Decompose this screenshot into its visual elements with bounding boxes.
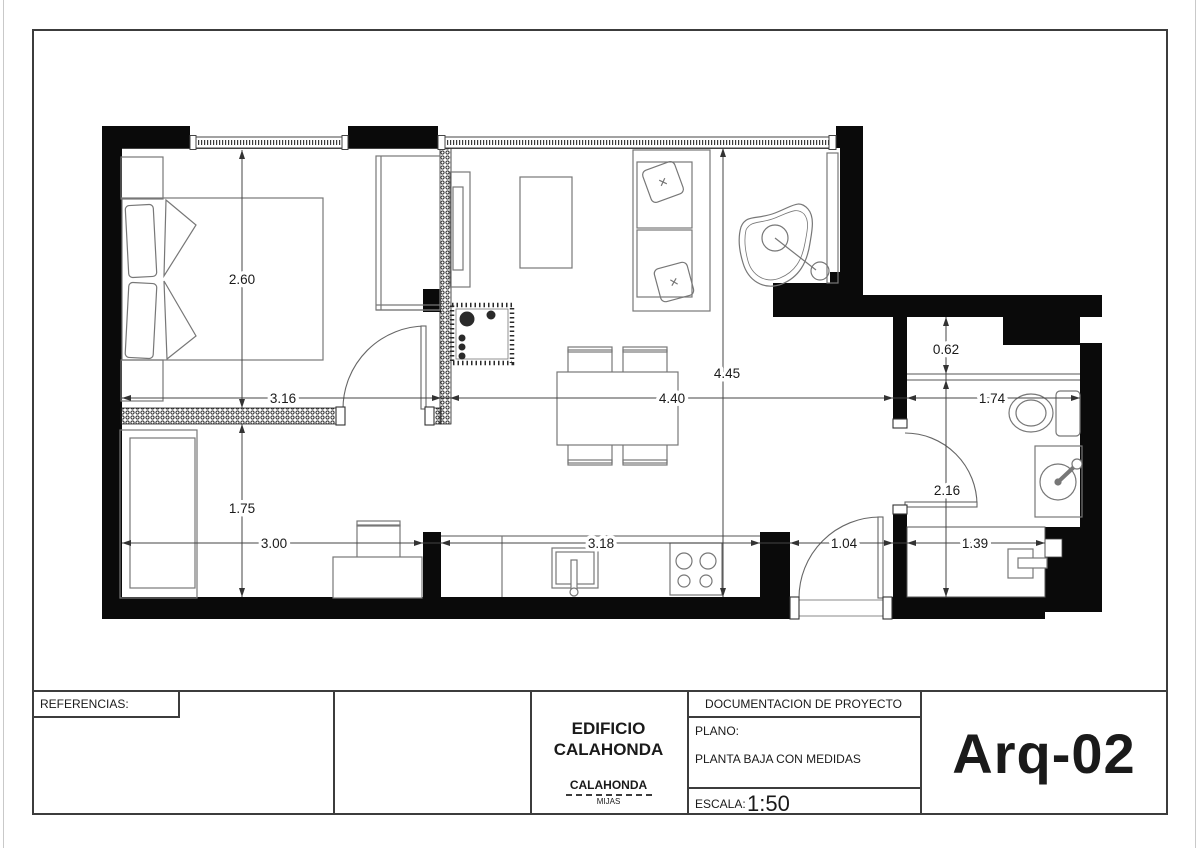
pillow	[125, 282, 157, 358]
blanket-fold	[164, 200, 196, 276]
window-living	[438, 136, 836, 150]
dim-bedroom-width: 3.16	[270, 391, 296, 406]
dining-set	[557, 347, 678, 465]
living-furniture	[450, 150, 838, 363]
scale-row: ESCALA: 1:50	[687, 787, 920, 817]
location-divider	[566, 794, 652, 796]
dim-shower-width: 1.39	[962, 536, 988, 551]
desk	[333, 557, 422, 598]
shelf	[827, 153, 838, 283]
nightstand	[121, 360, 163, 401]
wall-fixture	[1008, 549, 1047, 578]
coffee-table	[520, 177, 572, 268]
lower-room-furniture	[120, 430, 422, 598]
scale-label: ESCALA:	[695, 797, 746, 811]
window-bedroom	[190, 136, 348, 150]
dining-table	[557, 372, 678, 445]
dim-kitchen-width: 3.18	[588, 536, 614, 551]
dim-lower-room-height: 1.75	[229, 501, 255, 516]
washbasin	[1035, 446, 1082, 517]
references-label: REFERENCIAS:	[32, 692, 180, 718]
tv-cabinet	[450, 172, 470, 287]
pillow	[125, 204, 157, 277]
papasan-chair	[739, 204, 816, 286]
tiled-unit	[452, 305, 512, 363]
dim-lower-room-width: 3.00	[261, 536, 287, 551]
wardrobe	[376, 156, 440, 310]
location-name: CALAHONDA	[530, 778, 687, 792]
building-name-line2: CALAHONDA	[530, 739, 687, 760]
building-name-line1: EDIFICIO	[530, 718, 687, 739]
drawing-sheet: 3.16 4.40 1.74 3.00 3.18 1.04 1.39 2.60 …	[0, 0, 1200, 848]
dim-living-width: 4.40	[659, 391, 685, 406]
bathroom-door	[893, 419, 977, 514]
sheet-code-cell: Arq-02	[920, 692, 1168, 815]
daybed	[120, 430, 197, 598]
sofa	[633, 150, 710, 311]
plan-name: PLANTA BAJA CON MEDIDAS	[695, 752, 861, 766]
location-sub: MIJAS	[530, 797, 687, 806]
side-table	[811, 262, 829, 280]
building-title-cell: EDIFICIO CALAHONDA CALAHONDA MIJAS	[530, 692, 687, 815]
dim-bath-width: 1.74	[979, 391, 1006, 406]
sheet-code: Arq-02	[952, 721, 1135, 786]
kitchen-hob	[670, 543, 722, 595]
dim-bedroom-height: 2.60	[229, 272, 255, 287]
nightstand	[121, 157, 163, 199]
wall-niche	[1045, 539, 1062, 557]
doc-header: DOCUMENTACION DE PROYECTO	[687, 692, 920, 718]
dim-entry-width: 1.04	[831, 536, 858, 551]
title-block: REFERENCIAS: EDIFICIO CALAHONDA CALAHOND…	[32, 690, 1168, 815]
blanket-fold	[164, 281, 196, 359]
bedroom-furniture	[121, 156, 440, 401]
entry-door	[790, 517, 892, 619]
dim-living-height: 4.45	[714, 366, 740, 381]
documentation-cell: DOCUMENTACION DE PROYECTO PLANO: PLANTA …	[687, 692, 920, 815]
partition-walls	[121, 148, 451, 424]
title-block-divider	[333, 692, 335, 815]
double-bed	[122, 198, 323, 360]
dim-bath-height: 2.16	[934, 483, 960, 498]
dim-bath-niche: 0.62	[933, 342, 959, 357]
bedroom-door	[336, 326, 434, 425]
scale-value: 1:50	[747, 791, 790, 817]
plan-label: PLANO:	[695, 724, 739, 738]
kitchen-sink	[552, 548, 598, 596]
